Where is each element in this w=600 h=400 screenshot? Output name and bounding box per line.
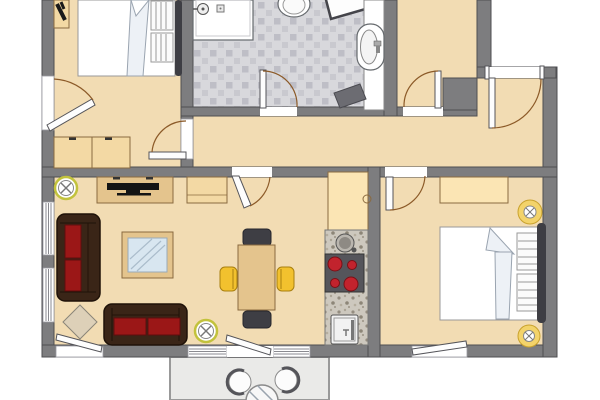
wardrobe [54,137,130,168]
handle-icon [351,320,354,340]
washbasin [357,24,384,70]
balcony-chair-left [229,371,251,393]
floor-plan-svg [0,0,600,400]
bed-2 [440,223,546,323]
burner [348,261,357,270]
kitchen [325,172,371,345]
headboard [175,0,182,76]
bed-1 [78,0,182,76]
sofa-left [57,214,100,301]
burner [331,279,340,288]
faucet-icon [374,41,381,46]
outside-top-right [491,0,600,67]
coffee-table [122,232,173,278]
faucet-icon [352,248,357,253]
burner [328,257,342,271]
bedside-lamp-bottom [518,325,540,347]
sofa-bottom [104,304,187,345]
tall-cabinet [328,172,371,230]
tv [107,183,159,190]
cushion [65,225,81,258]
duvet-fold [495,252,512,319]
coat-rack [54,0,69,28]
shower [193,0,253,40]
dresser [440,177,508,203]
balcony [170,357,329,400]
burner [344,277,358,291]
bedside-lamp-top [518,200,542,224]
handle-icon [69,138,76,141]
dark-chair-top [243,229,271,246]
window-bottom-1 [188,346,227,357]
hall-cabinet [187,177,227,203]
cooktop [325,254,364,292]
floor-plan [0,0,600,400]
wall-bath-storage [384,0,397,116]
dark-chair-bottom [243,311,271,328]
headboard [537,223,546,323]
window-left-1 [43,202,54,255]
cushion [114,318,146,335]
yellow-chair-right [277,267,294,291]
dining-table [238,245,275,310]
window-bottom-2 [273,346,310,357]
wall-corner-chunk [443,78,477,110]
balcony-chair-right [275,369,297,391]
yellow-chair-left [220,267,237,291]
tv-lowboard [97,177,173,203]
floor-lamp-2 [195,320,217,342]
cushion [65,260,81,291]
floor-lamp-1 [55,177,77,199]
handle-icon [105,138,112,141]
cushion [148,318,180,335]
refrigerator [331,315,358,344]
window-left-2 [43,268,54,322]
